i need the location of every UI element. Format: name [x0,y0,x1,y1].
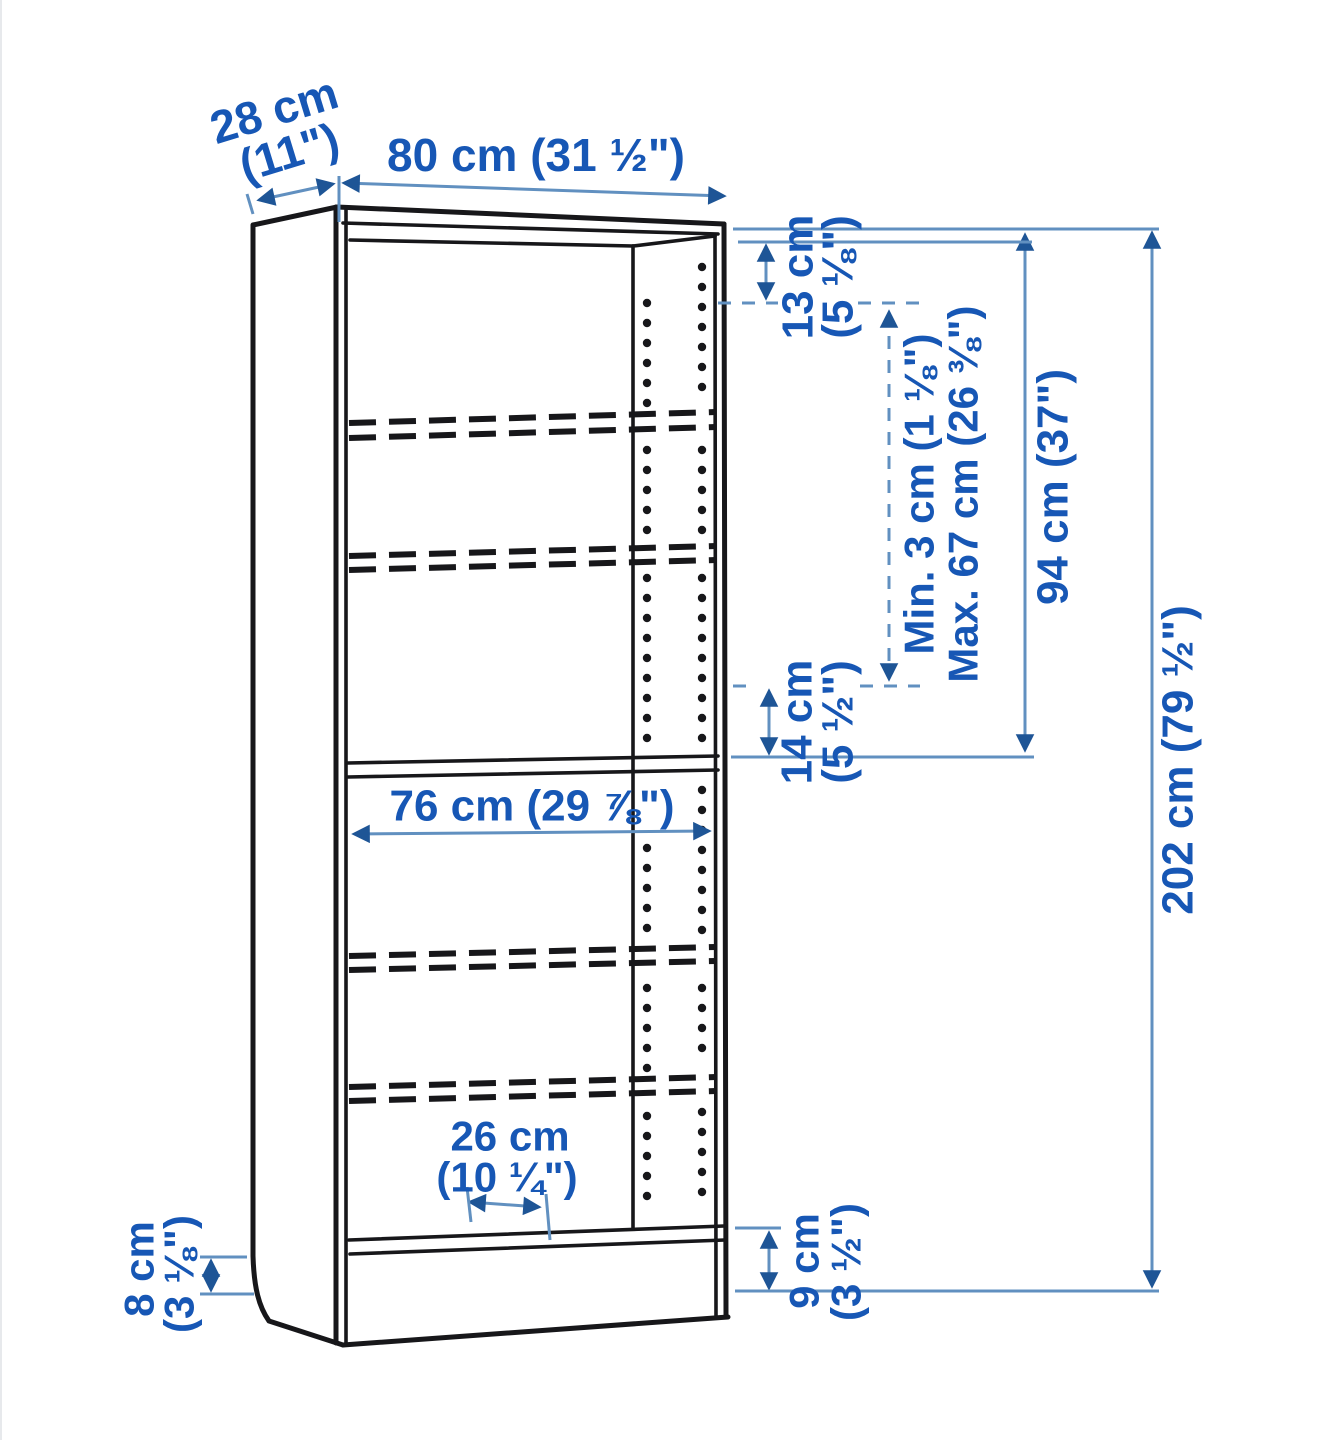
depth-left-tick [247,194,253,214]
adjustable-shelf-1-underside [349,427,716,438]
bottom-shelf-front-edge [350,1240,725,1254]
diagram-canvas: 80 cm (31 ½") 28 cm (11") 13 cm (5 ⅛") M… [2,0,1317,1440]
adjustable-shelf-4-underside [349,1091,716,1101]
adjustable-shelf-3 [349,947,716,956]
upper-height-dimension-label: 94 cm (37") [1029,369,1078,605]
interior-ceiling-edge [350,240,633,246]
dimension-lines [200,176,1159,1294]
right-edge-inner [715,236,716,1317]
depth-28-dimension-line [259,184,333,200]
shelf-depth-dimension-label-line1: 26 cm [450,1113,569,1160]
left-side-panel [253,207,343,1345]
shelf-max-spacing-label: Max. 67 cm (26 ⅜") [940,305,987,682]
width-dimension-label: 80 cm (31 ½") [387,129,685,181]
width-80-dimension-line [344,183,724,196]
right-edge-outer [724,224,726,1316]
top-edge-inner [343,223,718,234]
total-height-dimension-label: 202 cm (79 ½") [1154,605,1203,914]
adjustable-shelf-3-underside [349,961,716,970]
fixed-shelf-top-edge [348,756,718,763]
plinth-bottom-edge [343,1317,728,1345]
peg-holes-right-column [698,263,706,1196]
peg-holes-inner-column [643,299,651,1200]
base-front-dimension-label-line2: (3 ½") [823,1203,870,1321]
middle-gap-dimension-label-line2: (5 ½") [814,660,863,784]
adjustable-shelf-2 [349,546,716,556]
adjustable-shelf-4 [349,1077,716,1087]
bottom-shelf-top-edge [349,1226,724,1240]
base-back-dimension-label-line2: (3 ⅛") [156,1215,203,1333]
fixed-shelf-bottom-edge [348,770,718,777]
shelf-depth-26-dimension-line [470,1202,539,1207]
shelf-depth-dimension-label-line2: (10 ¼") [436,1154,577,1201]
top-gap-dimension-label-line2: (5 ⅛") [814,215,863,339]
shelf-min-spacing-label: Min. 3 cm (1 ⅛") [896,334,943,655]
adjustable-shelf-1 [349,412,716,423]
adjustable-shelf-2-underside [349,560,716,570]
inner-width-76-dimension-line [354,831,709,834]
dimension-labels: 80 cm (31 ½") 28 cm (11") 13 cm (5 ⅛") M… [116,66,1203,1333]
interior-ceiling-right-edge [633,236,715,246]
dimension-diagram: 80 cm (31 ½") 28 cm (11") 13 cm (5 ⅛") M… [0,0,1317,1440]
base-front-dimension-label-line1: 9 cm [781,1213,828,1309]
top-edge-outer [337,207,724,224]
inner-width-dimension-label: 76 cm (29 ⅞") [389,782,674,831]
